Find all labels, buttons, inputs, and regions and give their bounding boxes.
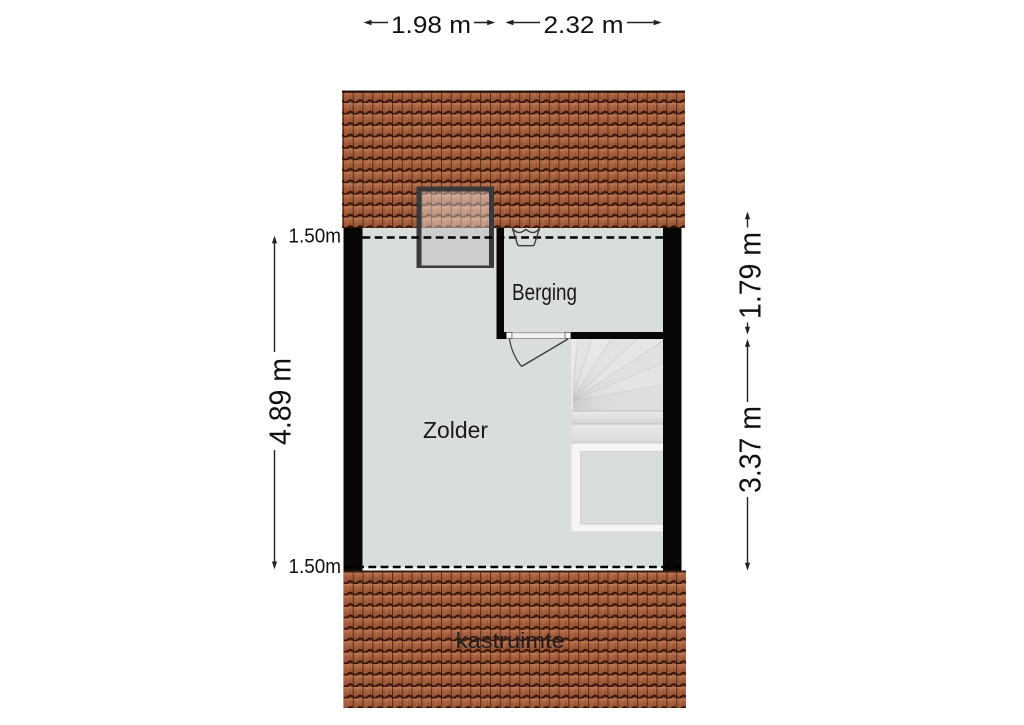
svg-text:1.79 m: 1.79 m <box>733 232 768 319</box>
svg-text:1.50m: 1.50m <box>289 225 342 248</box>
svg-text:Zolder: Zolder <box>423 417 488 443</box>
svg-text:kastruimte: kastruimte <box>456 628 565 653</box>
svg-text:2.32 m: 2.32 m <box>544 12 624 39</box>
svg-text:1.98 m: 1.98 m <box>391 12 471 39</box>
svg-text:3.37 m: 3.37 m <box>733 406 768 493</box>
svg-text:1.50m: 1.50m <box>289 555 342 578</box>
svg-text:Berging: Berging <box>512 279 577 305</box>
svg-text:4.89 m: 4.89 m <box>263 358 298 445</box>
